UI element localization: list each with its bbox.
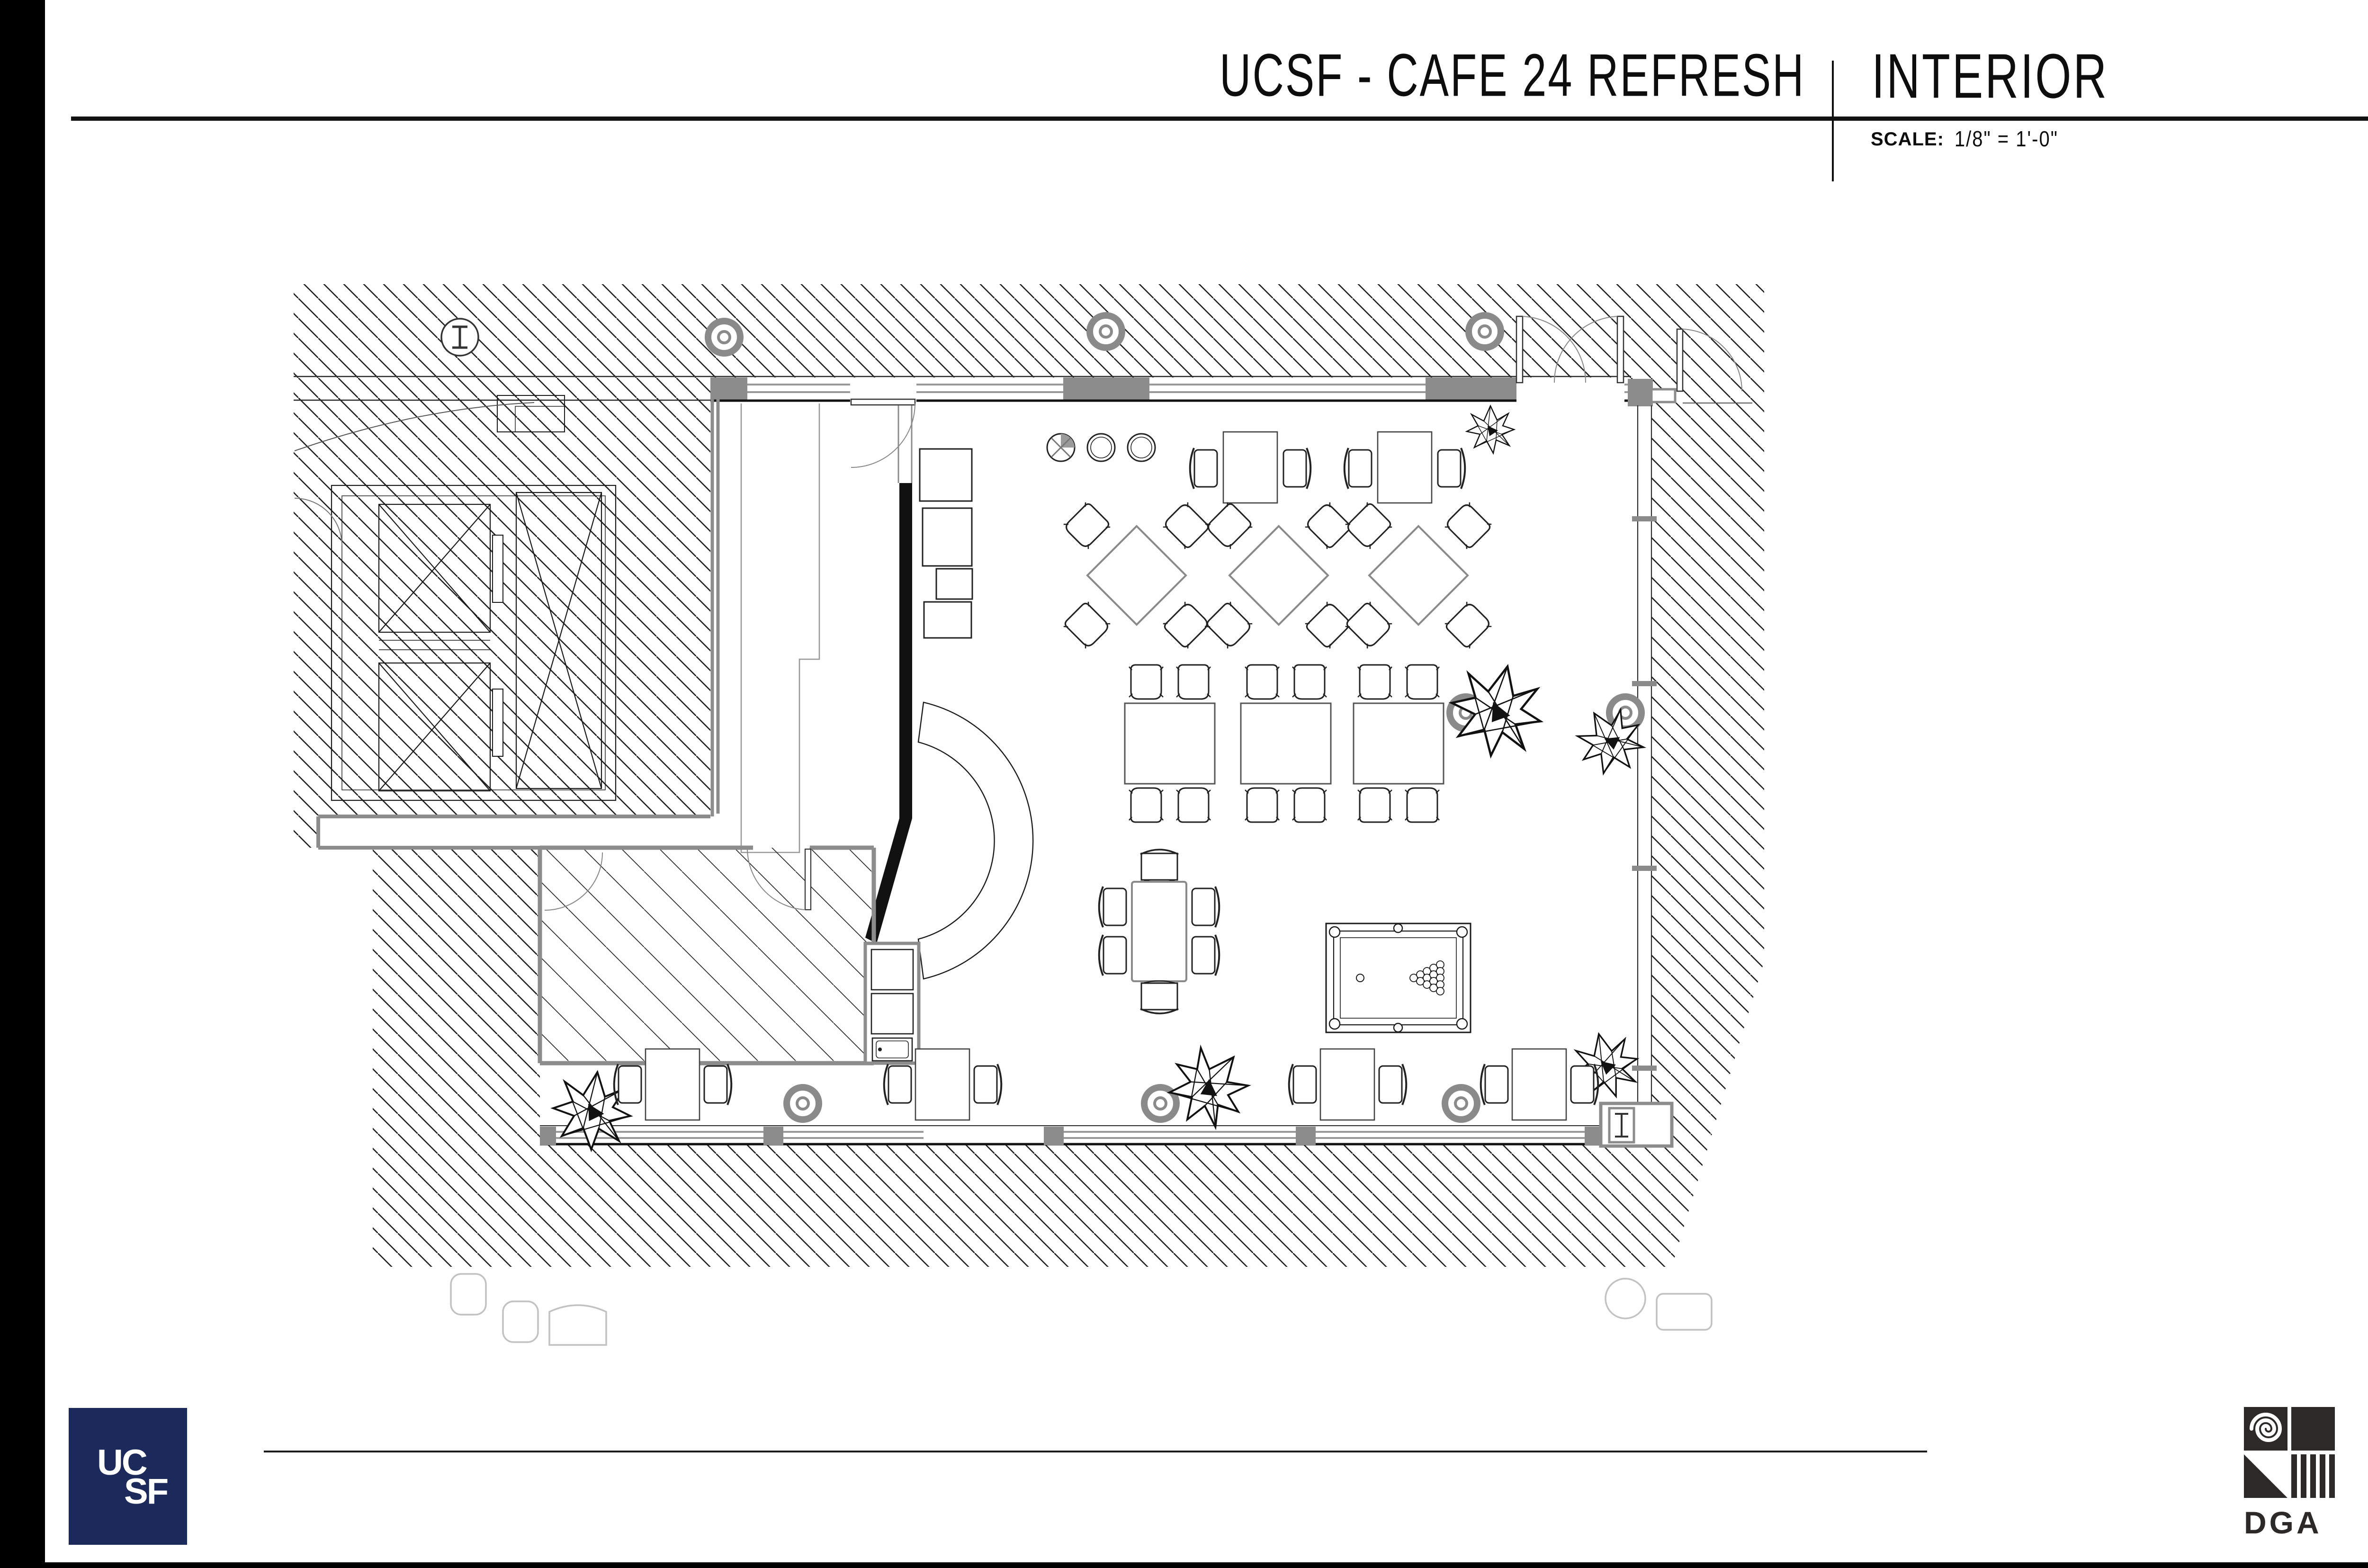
pool-table bbox=[1326, 923, 1471, 1032]
sink bbox=[872, 1038, 912, 1061]
corner-column-enclosure bbox=[1601, 1103, 1672, 1146]
dga-logo-text: DGA bbox=[2244, 1505, 2335, 1541]
stool bbox=[1128, 434, 1155, 461]
round-column bbox=[708, 321, 740, 353]
round-column bbox=[1469, 315, 1501, 348]
dga-logo-spiral-cell bbox=[2244, 1407, 2287, 1451]
window-stools bbox=[1047, 434, 1155, 461]
round-column bbox=[1090, 315, 1122, 348]
window-glass-right bbox=[1638, 405, 1651, 1104]
servery-equipment-line bbox=[920, 449, 972, 638]
window-glass-bottom bbox=[540, 1126, 1601, 1145]
dga-logo-bars-cell bbox=[2291, 1454, 2335, 1498]
footer-rule-line bbox=[264, 1451, 1927, 1452]
dga-logo: DGA bbox=[2244, 1407, 2335, 1541]
kitchenette-niche bbox=[865, 943, 919, 1063]
drawing-sheet: UCSF - CAFE 24 REFRESH INTERIOR SCALE:1/… bbox=[0, 0, 2368, 1568]
existing-furniture-ghost bbox=[451, 1274, 1712, 1345]
round-column bbox=[1445, 1087, 1477, 1120]
stool-with-x bbox=[1047, 434, 1075, 461]
i-beam-column-circle bbox=[441, 319, 478, 356]
dga-logo-triangle-cell bbox=[2244, 1454, 2287, 1498]
floor-plan-drawing bbox=[0, 0, 2368, 1568]
back-of-house-room bbox=[540, 848, 874, 1063]
ucsf-logo: UC SF bbox=[69, 1408, 187, 1545]
feature-wall bbox=[899, 483, 912, 818]
cue-ball bbox=[1356, 974, 1364, 982]
ucsf-logo-sf: SF bbox=[124, 1471, 167, 1512]
dga-logo-solid-cell bbox=[2291, 1407, 2335, 1451]
stool bbox=[1087, 434, 1115, 461]
round-column bbox=[787, 1087, 819, 1120]
